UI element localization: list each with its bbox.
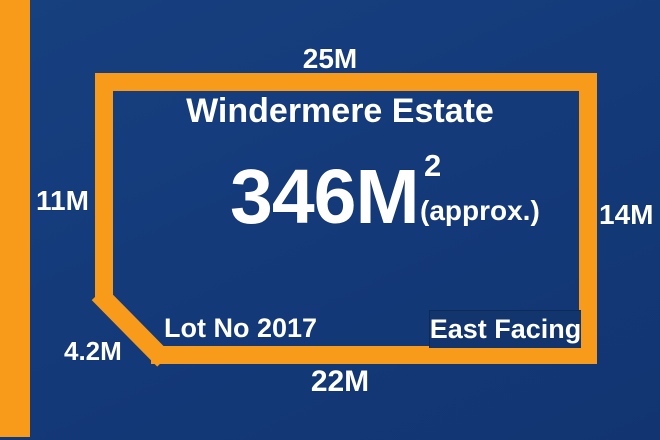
left-dimension-label: 11M — [36, 187, 89, 215]
area-superscript: 2 — [424, 150, 441, 181]
lot-number-label: Lot No 2017 — [164, 315, 317, 342]
facing-box: East Facing — [429, 310, 581, 348]
lot-diagram: Windermere Estate 25M 11M 14M 4.2M 22M 3… — [0, 0, 660, 440]
area-value: 346M — [230, 159, 419, 236]
diagonal-dimension-label: 4.2M — [64, 338, 122, 364]
right-dimension-label: 14M — [599, 201, 653, 229]
bottom-dimension-label: 22M — [250, 367, 430, 397]
facing-label: East Facing — [430, 316, 582, 343]
top-dimension-label: 25M — [240, 45, 420, 73]
estate-name: Windermere Estate — [80, 94, 600, 128]
area-approx-note: (approx.) — [420, 197, 540, 225]
